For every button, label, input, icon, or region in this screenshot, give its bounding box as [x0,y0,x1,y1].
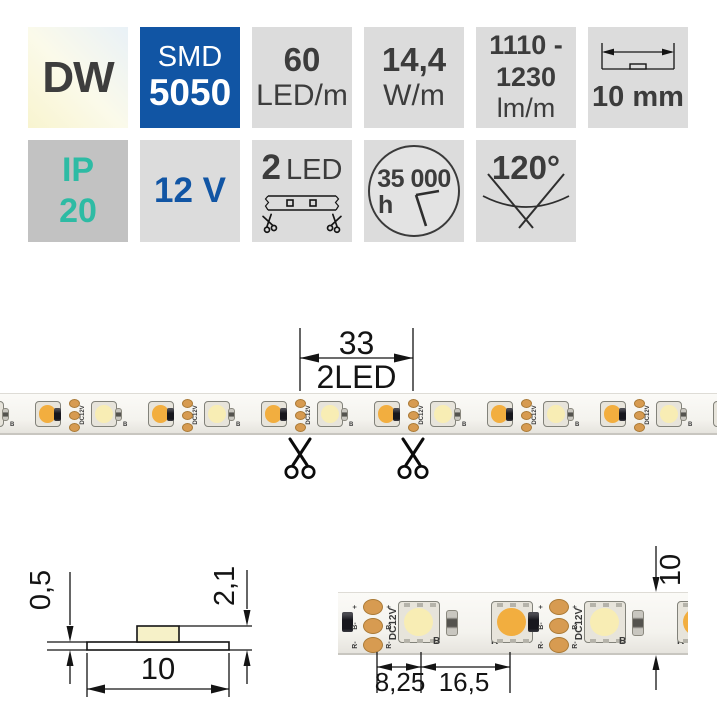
badge-power: 14,4 W/m [364,27,464,128]
resistor-black [54,408,61,421]
pcb-print: DC12V [75,393,91,435]
density-value: 60 [284,42,321,79]
ip-line2: 20 [59,191,97,232]
label-b: B [462,422,466,428]
led-package [656,401,682,427]
resistor-black [167,408,174,421]
badge-ip-rating: IP 20 [28,140,128,242]
led-package [204,401,230,427]
dim-strip-width-top-view: 10 [661,538,681,602]
led-die [434,405,452,423]
badge-voltage: 12 V [140,140,240,242]
pcb-cross-section [87,642,229,650]
cuttable-strip-icon [260,193,344,235]
resistor-gray [454,408,461,421]
badge-led-density: 60 LED/m [252,27,352,128]
led-die [660,405,678,423]
dw-label: DW [42,53,113,103]
strip-width-label: 10 mm [592,81,684,114]
badge-cut-unit: 2 LED [252,140,352,242]
label-b: B [349,422,353,428]
resistor-black [619,408,626,421]
mini-scissors-icon [261,213,277,232]
led-die [95,405,113,423]
pcb-print: DC12V [188,393,204,435]
badge-color-temp-dw: DW [28,27,128,128]
dim-led-pitch: 16,5 [435,669,493,695]
badge-luminous-flux: 1110 - 1230 lm/m [476,27,576,128]
mini-scissors-icon [327,213,343,232]
flux-line1: 1110 - [489,30,563,62]
led-die [321,405,339,423]
lifetime-unit: h [378,191,393,220]
dim-total-height: 2,1 [215,554,235,618]
resistor-gray [115,408,122,421]
pcb-print: DC12V [527,393,543,435]
dim-pcb-thickness: 0,5 [31,558,51,622]
led-die [547,405,565,423]
pcb-print: DC12V [640,393,656,435]
badge-chip-type: SMD 5050 [140,27,240,128]
led-package [317,401,343,427]
pcb-print: DC12V [414,393,430,435]
dim-cut-to-led: 8,25 [371,669,429,695]
led-strip-spec-sheet: DW SMD 5050 60 LED/m 14,4 W/m 1110 - 123… [0,0,717,709]
cut-unit: LED [286,154,342,187]
label-b: B [123,422,127,428]
resistor-gray [567,408,574,421]
resistor-gray [228,408,235,421]
label-b: B [688,422,692,428]
flux-unit: lm/m [497,93,555,125]
pcb-print: DC12V [301,393,317,435]
led-die [208,405,226,423]
smd-line2: 5050 [149,73,231,114]
voltage-label: 12 V [154,171,226,211]
resistor-gray [680,408,687,421]
resistor-black [506,408,513,421]
resistor-black [393,408,400,421]
scissors-icon [399,439,427,478]
ip-line1: IP [62,150,94,191]
smd-line1: SMD [158,42,222,73]
beam-angle-label: 120° [476,149,576,187]
label-b: B [10,422,14,428]
badge-beam-angle: 120° [476,140,576,242]
led-package [713,401,717,427]
spec-badge-grid: DW SMD 5050 60 LED/m 14,4 W/m 1110 - 123… [28,27,688,242]
led-package [430,401,456,427]
scissors-icon [286,439,314,478]
density-unit: LED/m [256,79,348,114]
power-value: 14,4 [382,42,446,79]
label-b: B [575,422,579,428]
led-strip-photo: DC12VBRDC12VBRDC12VBRDC12VBRDC12VBRDC12V… [0,393,717,435]
dim-strip-width: 10 [128,653,188,684]
power-unit: W/m [383,79,445,114]
led-package [91,401,117,427]
resistor-gray [341,408,348,421]
label-b: B [236,422,240,428]
badge-lifetime: 35 000 h [364,140,464,242]
resistor-black [280,408,287,421]
lifetime-value: 35 000 [364,165,464,194]
cut-value: 2 [262,148,281,188]
flux-line2: 1230 [496,62,556,94]
led-cross-section [137,626,179,642]
badge-strip-width: 10 mm [588,27,688,128]
resistor-gray [2,408,9,421]
width-arrow-icon [599,42,677,78]
led-package [543,401,569,427]
